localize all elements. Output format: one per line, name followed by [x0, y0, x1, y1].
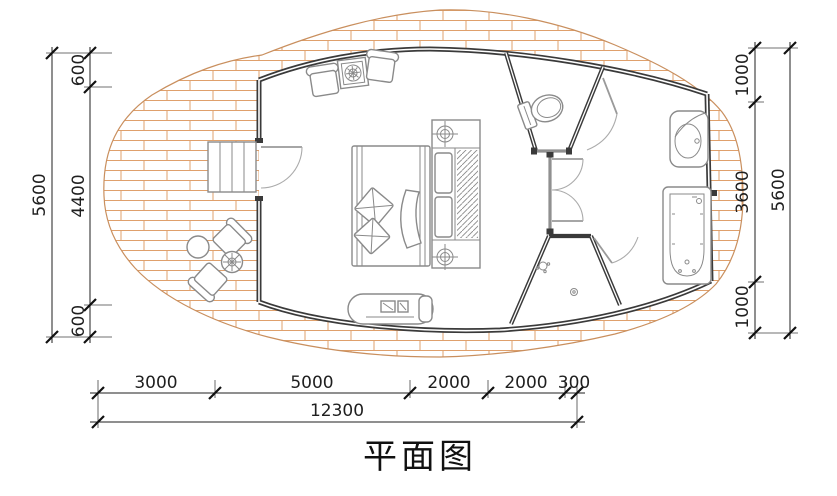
dim-right-seg-2: 3600 [733, 170, 753, 213]
flower-table [222, 252, 243, 273]
dim-left-seg-3: 600 [69, 305, 89, 337]
dim-left-seg-2: 4400 [69, 174, 89, 217]
dim-left-seg-1: 600 [69, 54, 89, 86]
floor-plan-svg: 5600 600 4400 600 1000 3600 1000 5600 30… [0, 0, 837, 496]
double-bed [352, 146, 430, 266]
drawing-title: 平面图 [363, 437, 477, 477]
dim-bottom-seg-5: 300 [558, 373, 590, 393]
dim-right-seg-3: 1000 [733, 285, 753, 328]
tv-console [348, 294, 433, 324]
dim-bottom-seg-4: 2000 [504, 373, 547, 393]
dim-bottom-seg-2: 5000 [290, 373, 333, 393]
dimension-bottom: 3000 5000 2000 2000 300 12300 [90, 373, 590, 428]
entry-steps [208, 142, 256, 192]
floor-plan-sheet: 5600 600 4400 600 1000 3600 1000 5600 30… [0, 0, 837, 496]
dimension-left: 5600 600 4400 600 [30, 47, 112, 343]
dim-bottom-seg-3: 2000 [427, 373, 470, 393]
dimension-right: 1000 3600 1000 5600 [733, 42, 798, 339]
side-table [337, 57, 368, 88]
wash-basin [670, 111, 708, 167]
wardrobe-unit [432, 120, 480, 270]
round-table [187, 236, 209, 258]
dim-bottom-seg-1: 3000 [134, 373, 177, 393]
dim-right-total: 5600 [769, 168, 789, 211]
dim-right-seg-1: 1000 [733, 53, 753, 96]
dim-left-total: 5600 [30, 173, 50, 216]
dim-bottom-total: 12300 [310, 401, 364, 421]
bathtub [663, 187, 711, 284]
